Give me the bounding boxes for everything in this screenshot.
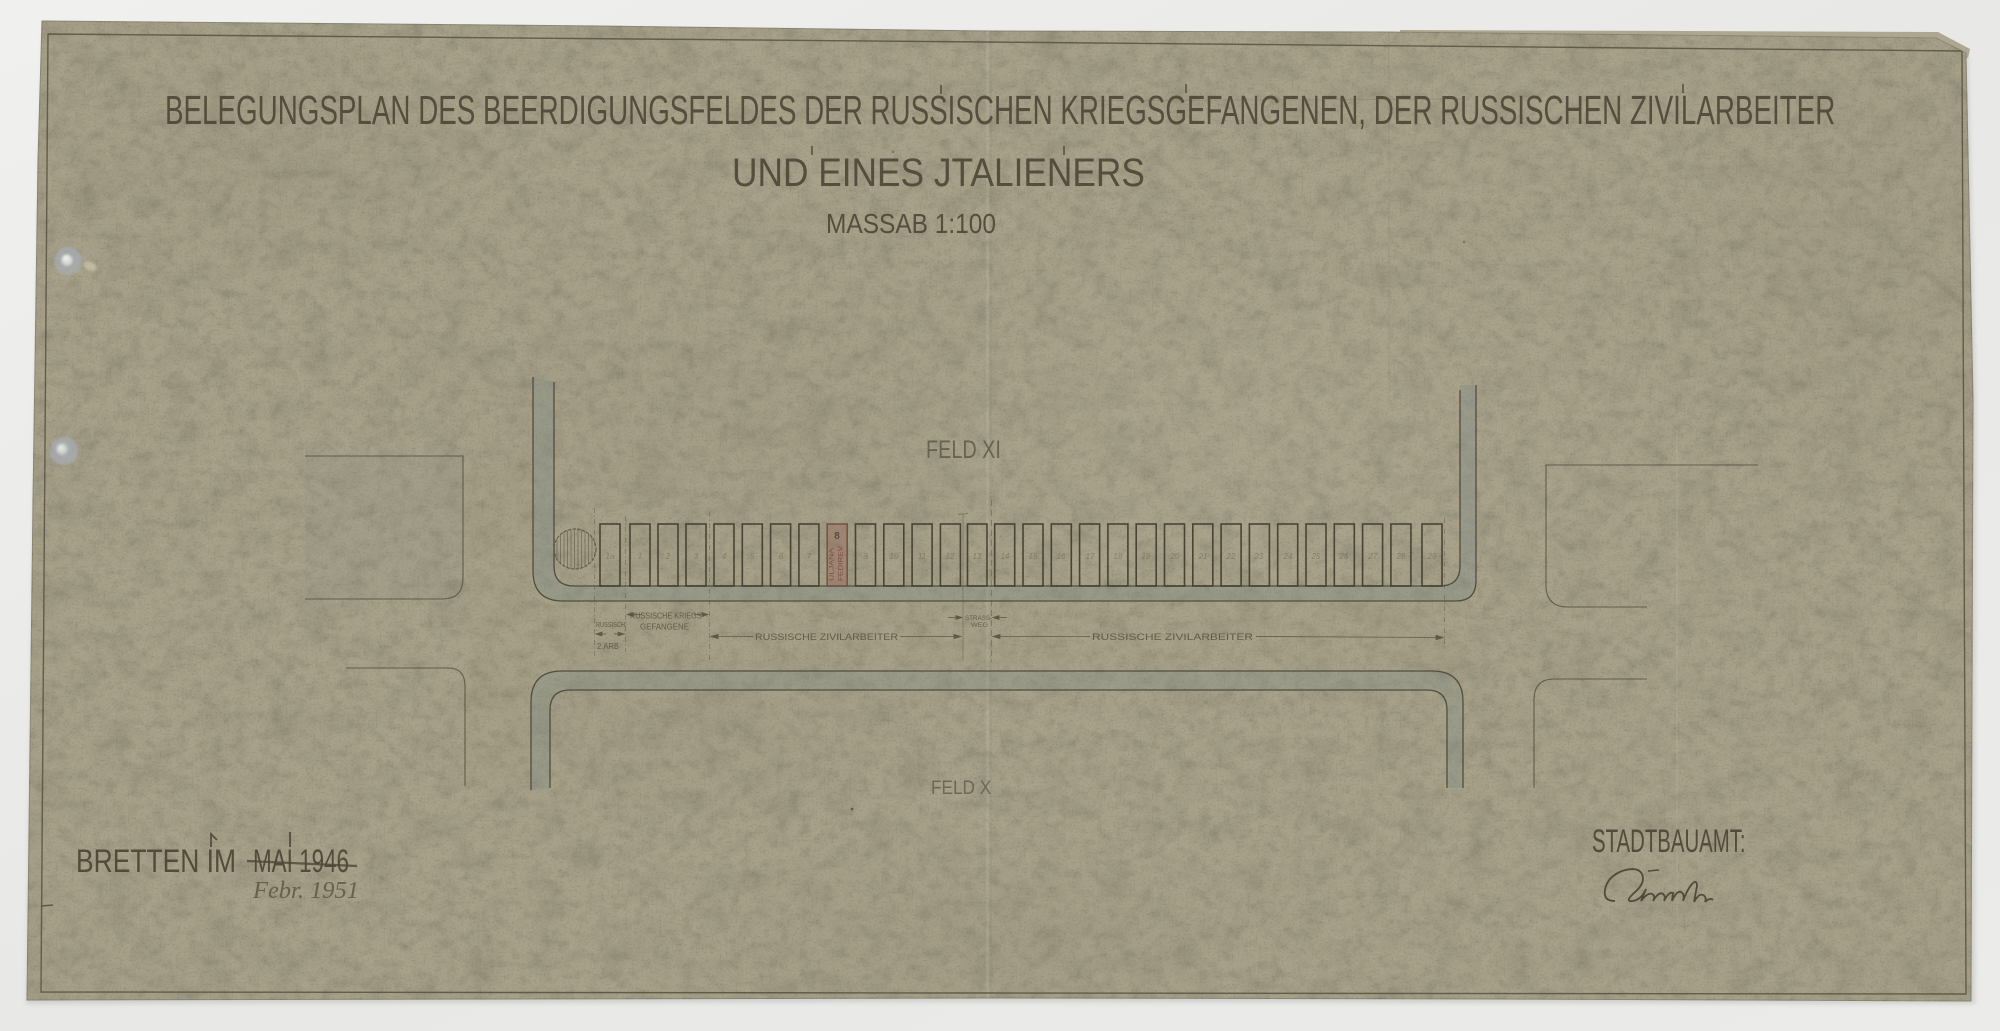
svg-text:26: 26: [1339, 552, 1349, 561]
svg-text:MASSAB 1:100: MASSAB 1:100: [826, 208, 996, 240]
svg-text:4: 4: [722, 552, 727, 561]
svg-text:RUSSISCHE ZIVILARBEITER: RUSSISCHE ZIVILARBEITER: [755, 632, 898, 643]
svg-text:21: 21: [1198, 552, 1208, 561]
svg-text:2.ARB: 2.ARB: [597, 642, 619, 651]
svg-text:GEFANGENE: GEFANGENE: [640, 623, 689, 632]
svg-text:RUSSISCH: RUSSISCH: [596, 622, 625, 629]
svg-text:WEG: WEG: [971, 622, 988, 629]
svg-text:25: 25: [1311, 552, 1321, 561]
svg-text:27: 27: [1368, 552, 1378, 561]
svg-text:6: 6: [779, 552, 784, 561]
svg-text:13: 13: [973, 552, 982, 561]
svg-text:STRASS-: STRASS-: [965, 615, 992, 622]
svg-text:FEDIREV: FEDIREV: [838, 545, 845, 581]
svg-text:23: 23: [1254, 552, 1264, 561]
svg-text:18: 18: [1114, 552, 1123, 561]
svg-text:2: 2: [665, 552, 671, 561]
svg-text:ULJANA: ULJANA: [829, 547, 836, 581]
svg-text:24: 24: [1283, 552, 1293, 561]
svg-text:16: 16: [1057, 552, 1066, 561]
svg-text:RUSSISCHE KRIEGS-: RUSSISCHE KRIEGS-: [630, 612, 704, 621]
svg-text:10: 10: [890, 552, 899, 561]
svg-text:7: 7: [807, 552, 812, 561]
svg-text:3: 3: [694, 552, 699, 561]
svg-text:8: 8: [834, 531, 840, 542]
svg-text:15: 15: [1029, 552, 1038, 561]
svg-text:20: 20: [1170, 552, 1180, 561]
svg-text:1: 1: [638, 552, 642, 561]
svg-text:5: 5: [750, 552, 755, 561]
svg-text:FELD XI: FELD XI: [926, 435, 1001, 464]
svg-text:BRETTEN IM: BRETTEN IM: [76, 843, 236, 879]
svg-text:UND EINES JTALIENERS: UND EINES JTALIENERS: [732, 151, 1145, 195]
svg-text:RUSSISCHE ZIVILARBEITER: RUSSISCHE ZIVILARBEITER: [1092, 632, 1253, 643]
svg-text:1a: 1a: [606, 552, 615, 561]
svg-text:29: 29: [1427, 552, 1437, 561]
svg-text:22: 22: [1226, 552, 1236, 561]
svg-text:19: 19: [1142, 552, 1151, 561]
svg-text:12: 12: [946, 552, 955, 561]
svg-text:9: 9: [864, 552, 869, 561]
svg-text:Febr. 1951: Febr. 1951: [252, 878, 359, 904]
svg-text:STADTBAUAMT:: STADTBAUAMT:: [1592, 823, 1746, 859]
svg-text:14: 14: [1001, 552, 1010, 561]
svg-text:BELEGUNGSPLAN DES BEERDIGUNGSF: BELEGUNGSPLAN DES BEERDIGUNGSFELDES DER …: [165, 89, 1835, 133]
svg-text:FELD X: FELD X: [931, 777, 991, 799]
svg-text:11: 11: [918, 552, 926, 561]
svg-text:17: 17: [1086, 552, 1095, 561]
svg-text:28: 28: [1396, 552, 1406, 561]
